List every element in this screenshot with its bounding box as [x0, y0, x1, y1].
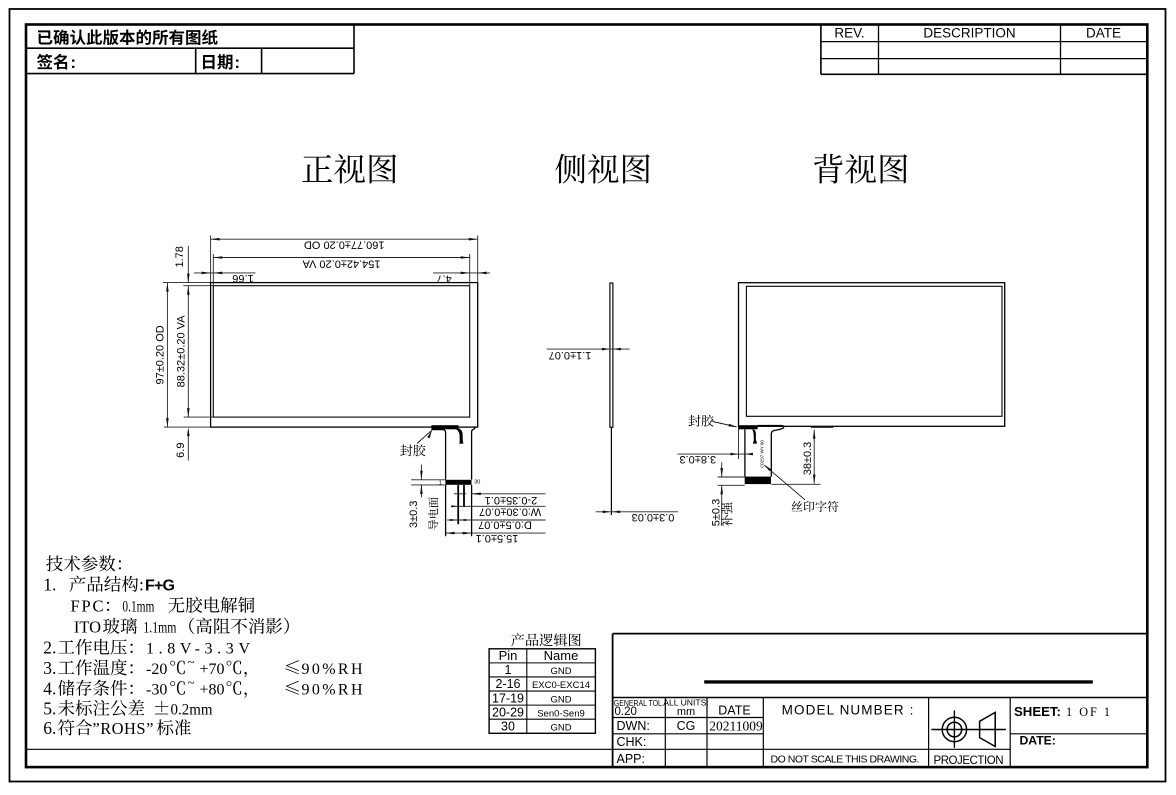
svg-text:0.20: 0.20 [615, 706, 637, 718]
svg-text:DESCRIPTION: DESCRIPTION [923, 26, 1015, 41]
svg-text:1.1±0.07: 1.1±0.07 [549, 349, 592, 361]
svg-text:30: 30 [474, 480, 480, 486]
svg-text:DATE: DATE [1086, 26, 1121, 41]
svg-text:MODEL NUMBER :: MODEL NUMBER : [782, 703, 914, 718]
svg-text:FPC: FPC [71, 597, 104, 616]
svg-text:1.: 1. [43, 575, 56, 595]
svg-text:20-29: 20-29 [492, 705, 524, 719]
svg-text:1: 1 [439, 480, 442, 486]
svg-text:2-16: 2-16 [495, 677, 520, 691]
svg-text:4.: 4. [43, 679, 56, 699]
svg-text:4.7: 4.7 [436, 272, 451, 284]
svg-text:6.: 6. [43, 718, 56, 738]
svg-text:Pin: Pin [499, 648, 518, 663]
svg-text:3±0.3: 3±0.3 [408, 501, 420, 528]
svg-text:154.42±0.20 VA: 154.42±0.20 VA [302, 257, 381, 269]
svg-text:APP:: APP: [617, 752, 646, 766]
svg-text:0.1mm: 0.1mm [122, 599, 154, 616]
svg-text:F+G: F+G [145, 578, 175, 595]
svg-text:15.5±0.1: 15.5±0.1 [476, 532, 519, 544]
svg-text:0.3±0.03: 0.3±0.03 [632, 511, 675, 523]
svg-text:1.8V-3.3V: 1.8V-3.3V [146, 641, 250, 658]
svg-text:DATE: DATE [718, 704, 750, 718]
svg-text:+80: +80 [200, 682, 225, 699]
svg-text:GND: GND [550, 666, 571, 677]
svg-text:1: 1 [505, 663, 512, 677]
svg-text::: : [71, 54, 77, 72]
svg-text:DATE:: DATE: [1020, 734, 1056, 748]
svg-text:D:0.5±0.07: D:0.5±0.07 [478, 518, 532, 530]
svg-text:88.32±0.20 VA: 88.32±0.20 VA [175, 315, 187, 388]
svg-text:~: ~ [188, 675, 195, 690]
svg-text:CHK:: CHK: [617, 735, 647, 749]
svg-text:90%RH: 90%RH [302, 682, 363, 699]
svg-text:160.77±0.20 OD: 160.77±0.20 OD [304, 239, 385, 251]
svg-text:mm: mm [677, 706, 695, 718]
svg-text:Sen0-Sen9: Sen0-Sen9 [537, 708, 585, 719]
svg-text:+70: +70 [200, 661, 225, 678]
svg-text:1.78: 1.78 [174, 246, 186, 267]
svg-text:CG: CG [677, 719, 696, 733]
svg-text:38±0.3: 38±0.3 [802, 442, 814, 476]
svg-text:1.1mm: 1.1mm [143, 620, 176, 637]
svg-text:Name: Name [544, 648, 579, 663]
svg-text:17-19: 17-19 [492, 691, 524, 705]
svg-text:-30: -30 [146, 682, 167, 699]
svg-text::: : [139, 575, 144, 595]
svg-text:”ROHS”: ”ROHS” [92, 719, 153, 738]
svg-text:3.: 3. [43, 658, 56, 678]
svg-text:GND: GND [550, 722, 571, 733]
svg-text:W:0.30±0.07: W:0.30±0.07 [479, 505, 541, 517]
svg-text:1.66: 1.66 [232, 272, 253, 284]
svg-text:20211009: 20211009 [709, 719, 763, 734]
svg-text:5.: 5. [43, 699, 56, 719]
svg-text:DO NOT SCALE THIS DRAWING.: DO NOT SCALE THIS DRAWING. [771, 754, 920, 766]
svg-text:~: ~ [188, 654, 195, 669]
svg-text:PROJECTION: PROJECTION [934, 755, 1004, 767]
svg-text:ITO: ITO [74, 618, 101, 637]
svg-text:5±0.3: 5±0.3 [711, 499, 723, 526]
svg-text:0.2mm: 0.2mm [171, 702, 214, 719]
svg-text:GND: GND [550, 694, 571, 705]
svg-text:-20: -20 [146, 661, 167, 678]
svg-text:30: 30 [501, 719, 515, 733]
svg-text:97±0.20 OD: 97±0.20 OD [155, 325, 167, 384]
svg-text:EXC0-EXC14: EXC0-EXC14 [532, 680, 590, 691]
svg-text:6.9: 6.9 [175, 443, 187, 458]
svg-text:2.: 2. [43, 638, 56, 658]
svg-text:DWN:: DWN: [617, 719, 650, 733]
svg-text:C0297 WY 00: C0297 WY 00 [760, 440, 765, 468]
svg-text::: : [235, 54, 241, 72]
svg-text:REV.: REV. [834, 26, 864, 41]
svg-text:2-0.35±0.1: 2-0.35±0.1 [485, 494, 538, 506]
svg-text:90%RH: 90%RH [302, 661, 363, 678]
svg-text:SHEET:: SHEET: [1014, 704, 1061, 719]
svg-text:3.8±0.3: 3.8±0.3 [679, 453, 716, 465]
svg-text:1 OF 1: 1 OF 1 [1066, 705, 1110, 719]
